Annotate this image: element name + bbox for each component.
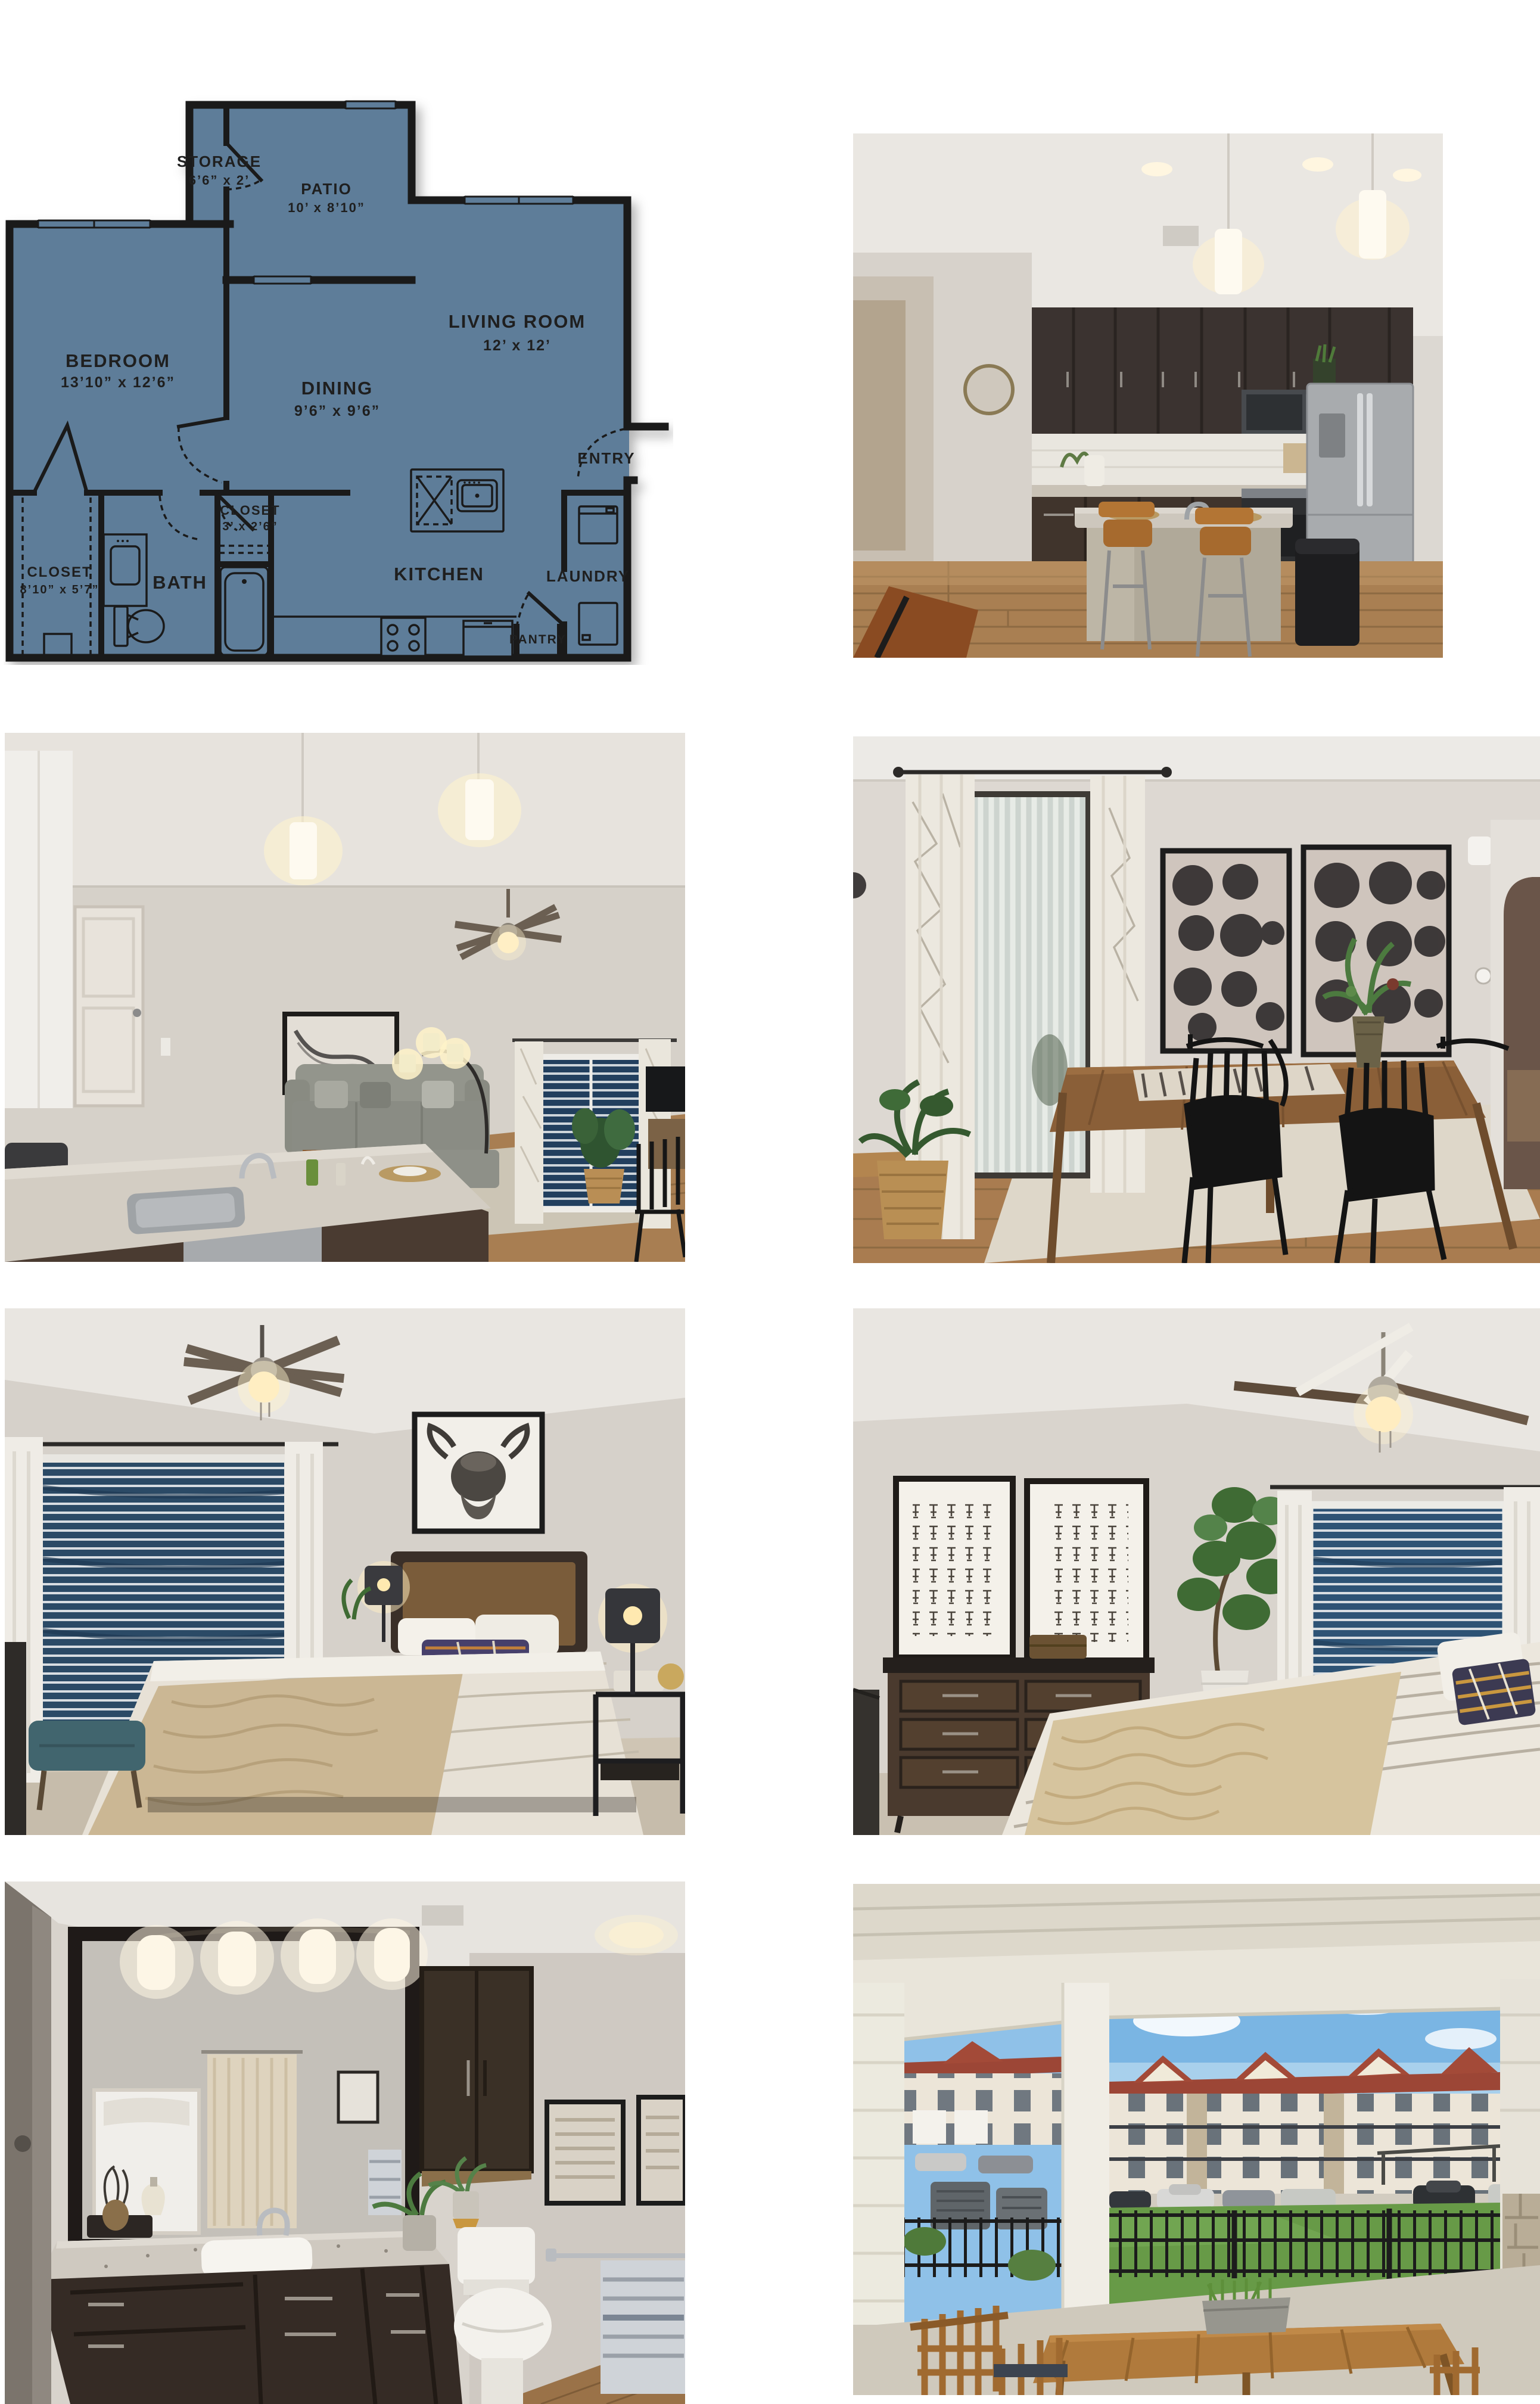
wall-speaker (1468, 836, 1492, 865)
window-bedroom (38, 220, 150, 228)
tv (646, 1066, 685, 1112)
label-storage: STORAGE (177, 153, 262, 170)
archway (1491, 820, 1540, 1189)
label-closet-bed-dims: 8’10” x 5’7” (20, 583, 99, 596)
foreground-edge (853, 1690, 879, 1835)
ceiling (5, 733, 685, 887)
mirror-shower-curtain (207, 2054, 297, 2228)
bedroom1-photo-image (5, 1308, 685, 1835)
label-laundry: LAUNDRY (546, 567, 630, 585)
foreground-edge (5, 1642, 26, 1835)
label-pantry: PANTRY (509, 633, 567, 646)
bathroom-photo-image (5, 1881, 685, 2404)
window-patio-top (346, 101, 396, 109)
label-bath: BATH (153, 572, 207, 593)
air-vent (422, 1905, 463, 1926)
kitchen-photo (853, 133, 1443, 658)
label-bedroom-dims: 13’10” x 12’6” (61, 374, 175, 391)
label-closet-bed: CLOSET (27, 564, 92, 580)
living-room-photo-image (5, 733, 685, 1262)
kitchen-photo-image (853, 133, 1443, 658)
dining-photo-image (853, 736, 1540, 1263)
dishwasher (463, 621, 512, 657)
trash-can (1295, 539, 1359, 646)
light-switch (161, 1038, 170, 1056)
label-living: LIVING ROOM (449, 311, 586, 332)
stove (381, 618, 425, 656)
label-closet-hall-dims: 3’ x 2’6” (222, 520, 278, 533)
bathroom-photo (5, 1881, 685, 2404)
label-dining-dims: 9’6” x 9’6” (294, 403, 380, 419)
wall-cabinet (422, 1968, 531, 2187)
label-kitchen: KITCHEN (394, 564, 484, 584)
patio-photo-image (853, 1884, 1540, 2395)
soap-bottle (306, 1159, 318, 1186)
photo-gallery-page: BEDROOM 13’10” x 12’6” DINING 9’6” x 9’6… (0, 0, 1540, 2404)
window-patio-bottom (254, 276, 311, 284)
label-bedroom: BEDROOM (66, 350, 170, 371)
entry-door (75, 907, 143, 1106)
label-closet-hall: CLOSET (220, 503, 280, 518)
floorplan-diagram: BEDROOM 13’10” x 12’6” DINING 9’6” x 9’6… (4, 95, 673, 665)
air-vent (1163, 226, 1199, 246)
label-dining: DINING (301, 378, 374, 399)
label-storage-dims: 6’6” x 2’ (189, 173, 250, 188)
cow-art (415, 1414, 542, 1531)
patio-photo (853, 1884, 1540, 2395)
dining-photo (853, 736, 1540, 1263)
thermostat (1476, 968, 1491, 984)
label-living-dims: 12’ x 12’ (483, 337, 551, 354)
bedroom2-photo (853, 1308, 1540, 1835)
bedroom1-photo (5, 1308, 685, 1835)
label-entry: ENTRY (577, 449, 635, 467)
vanity-cabinets (38, 2264, 462, 2404)
bedroom2-photo-image (853, 1308, 1540, 1835)
hallway-glow (853, 300, 906, 551)
floorplan-cell: BEDROOM 13’10” x 12’6” DINING 9’6” x 9’6… (4, 95, 673, 665)
framed-art (547, 2097, 685, 2203)
wall-clock (965, 366, 1013, 413)
living-room-photo (5, 733, 685, 1262)
label-patio-dims: 10’ x 8’10” (288, 200, 365, 215)
label-patio: PATIO (301, 180, 352, 198)
accent-pillow (1452, 1658, 1536, 1725)
window-living (465, 196, 573, 204)
